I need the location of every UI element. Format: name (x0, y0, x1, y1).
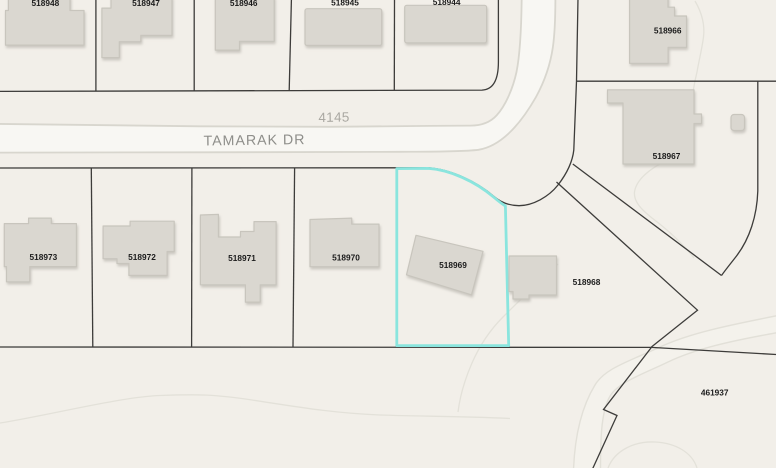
svg-text:518946: 518946 (230, 0, 258, 8)
svg-text:518966: 518966 (654, 25, 682, 35)
svg-text:518973: 518973 (30, 252, 58, 262)
svg-text:518971: 518971 (228, 253, 256, 263)
svg-text:518970: 518970 (332, 253, 360, 263)
svg-text:518969: 518969 (439, 260, 467, 270)
svg-text:518947: 518947 (132, 0, 160, 8)
svg-text:518948: 518948 (32, 0, 60, 8)
svg-text:518944: 518944 (433, 0, 461, 7)
svg-text:518967: 518967 (653, 151, 681, 161)
svg-text:518972: 518972 (128, 252, 156, 262)
svg-text:518968: 518968 (573, 277, 601, 287)
svg-text:TAMARAK DR: TAMARAK DR (203, 132, 305, 149)
svg-text:461937: 461937 (701, 388, 729, 398)
svg-text:518945: 518945 (331, 0, 359, 8)
svg-text:4145: 4145 (318, 110, 349, 126)
